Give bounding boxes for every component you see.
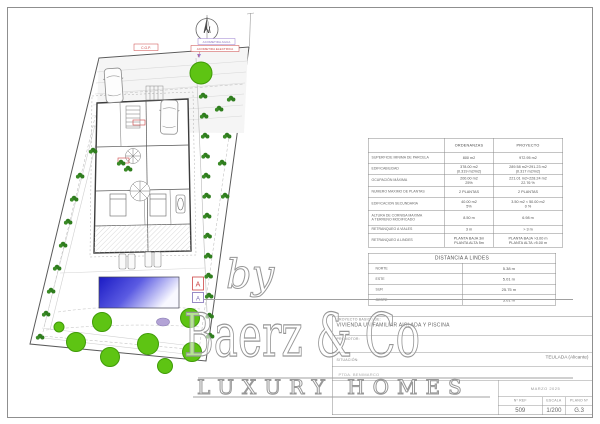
ordenanzas-row: SUPERFICIE MINIMA DE PARCELA800 m2972.95… — [368, 152, 563, 163]
cell-proy: 6.98 m — [493, 210, 563, 225]
cell-side: OESTE — [368, 295, 462, 306]
cell-side: SUR — [368, 284, 462, 295]
situacion-value: TEULADA (Alicante) — [545, 355, 588, 361]
ordenanzas-row: RETRANQUEO A VIALES3 m> 3 m — [368, 225, 563, 233]
project-label: PROYECTO BASICO DE: — [337, 318, 593, 322]
cell-label: OCUPACIÓN MÁXIMA — [368, 174, 445, 186]
drawing-sheet: N C.G.P. ACOMETIDA AGUA ACOMETIDA ELECTR… — [0, 0, 600, 424]
acometida-electrica-label: ACOMETIDA ELECTRICA — [197, 47, 234, 51]
ref-value: 509 — [499, 406, 543, 415]
cell-ord: 378.00 m2 (0.319 m2/m2) — [445, 163, 494, 174]
section-markers: A A — [193, 277, 204, 303]
cell-ord: PLANTA BAJA 3m PLANTA ALTA 5m — [445, 233, 494, 247]
cell-label: SUPERFICIE MINIMA DE PARCELA — [368, 152, 445, 163]
date-box: MARZO 2025 — [499, 381, 593, 398]
cell-proy: PLANTA BAJA >3.00 m PLANTA ALTA >5.00 m — [493, 233, 563, 247]
acometida-agua-label: ACOMETIDA AGUA — [203, 40, 232, 44]
ordenanzas-table: ORDENANZAS PROYECTO SUPERFICIE MINIMA DE… — [368, 138, 563, 248]
cell-label: RETRANQUEO A LINDES — [368, 233, 445, 247]
date-value: MARZO 2025 — [531, 386, 560, 391]
cell-side: NORTE — [368, 263, 462, 274]
ordenanzas-corner-cell — [368, 138, 445, 152]
cell-label: ALTURA DE CORNISA MAXIMA A TERRENO MODIF… — [368, 210, 445, 225]
ordenanzas-row: RETRANQUEO A LINDESPLANTA BAJA 3m PLANTA… — [368, 233, 563, 247]
signature-cell — [333, 381, 499, 415]
escala-label: ESCALA — [543, 397, 566, 405]
ordenanzas-row: EDIFICACION SECUNDARIA40.00 m2 5%3.50 m2… — [368, 197, 563, 210]
cell-ord: 40.00 m2 5% — [445, 197, 494, 210]
cell-proy: 3.50 m2 < 50.00 m2 0 % — [493, 197, 563, 210]
north-label: N — [204, 25, 211, 35]
cell-ord: 800 m2 — [445, 152, 494, 163]
cell-ord: 200.00 m2 25% — [445, 174, 494, 186]
address-line: PTDA. BENIMARCO — [339, 373, 380, 378]
car-1 — [103, 68, 125, 103]
cell-label: EDIFICACION SECUNDARIA — [368, 197, 445, 210]
plano-value: G.3 — [566, 406, 593, 415]
cell-label: EDIFICABILIDAD — [368, 163, 445, 174]
cell-label: RETRANQUEO A VIALES — [368, 225, 445, 233]
cell-distance: 25.75 m — [462, 284, 556, 295]
ordenanzas-row: OCUPACIÓN MÁXIMA200.00 m2 25%221.01 m2+2… — [368, 174, 563, 186]
cell-proy: 972.95 m2 — [493, 152, 563, 163]
cell-label: NUMERO MAXIMO DE PLANTAS — [368, 186, 445, 197]
cell-ord: 8.50 m — [445, 210, 494, 225]
project-name: VIVIENDA UNIFAMILIAR AISLADA Y PISCINA — [337, 323, 593, 329]
house-footprint — [90, 86, 196, 269]
title-block: PROYECTO BASICO DE: VIVIENDA UNIFAMILIAR… — [332, 316, 593, 415]
cell-proy: > 3 m — [493, 225, 563, 233]
situacion-label: SITUACIÓN: — [337, 359, 359, 363]
distancias-row: ESTE5.01 m — [368, 274, 556, 285]
pool — [99, 277, 179, 308]
cell-proy: 2 PLANTAS — [493, 186, 563, 197]
cell-distance: 5.01 m — [462, 295, 556, 306]
svg-text:A: A — [196, 282, 201, 289]
ordenanzas-row: ALTURA DE CORNISA MAXIMA A TERRENO MODIF… — [368, 210, 563, 225]
ordenanzas-row: EDIFICABILIDAD378.00 m2 (0.319 m2/m2)289… — [368, 163, 563, 174]
ordenanzas-row: NUMERO MAXIMO DE PLANTAS2 PLANTAS2 PLANT… — [368, 186, 563, 197]
distancias-row: SUR25.75 m — [368, 284, 556, 295]
promotor-label: PROMOTOR: — [337, 338, 593, 342]
distancias-table: DISTANCIA A LINDES NORTE5.38 mESTE5.01 m… — [368, 253, 556, 306]
cgp-label: C.G.P. — [141, 46, 151, 50]
escala-value: 1/200 — [543, 406, 566, 415]
cell-distance: 5.01 m — [462, 274, 556, 285]
cell-distance: 5.38 m — [462, 263, 556, 274]
distancias-row: OESTE5.01 m — [368, 295, 556, 306]
cell-ord: 3 m — [445, 225, 494, 233]
garden-ornament — [157, 318, 170, 326]
distancias-row: NORTE5.38 m — [368, 263, 556, 274]
ref-label: Nº REF — [499, 397, 543, 405]
car-2 — [159, 100, 180, 134]
cell-side: ESTE — [368, 274, 462, 285]
svg-text:A: A — [196, 297, 200, 303]
col-header-ordenanzas: ORDENANZAS — [445, 138, 494, 152]
cell-proy: 221.01 m2+228.24 m2 22.76 % — [493, 174, 563, 186]
plano-label: PLANO Nº — [566, 397, 593, 405]
cell-proy: 289.58 m2+291.23 m2 (0.317 m2/m2) — [493, 163, 563, 174]
cell-ord: 2 PLANTAS — [445, 186, 494, 197]
terrace-deck — [94, 224, 191, 253]
distancias-title: DISTANCIA A LINDES — [368, 253, 556, 263]
col-header-proyecto: PROYECTO — [493, 138, 563, 152]
